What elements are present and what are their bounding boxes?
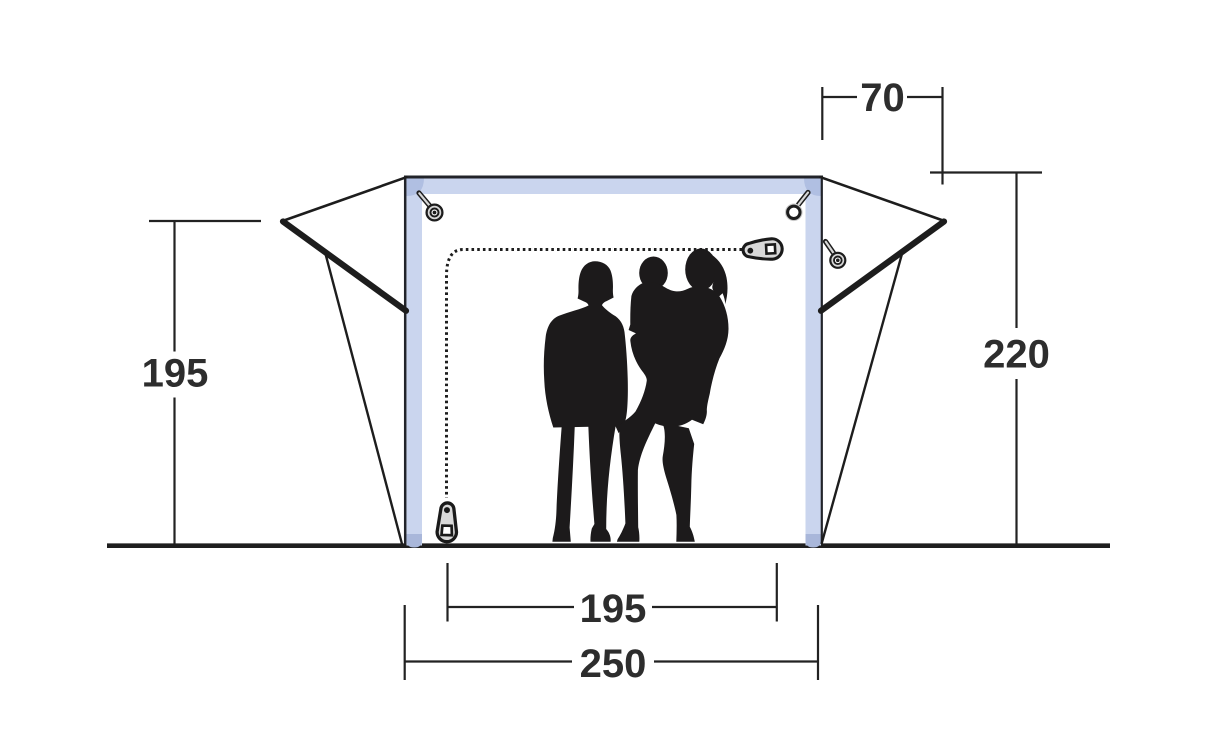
- svg-text:195: 195: [580, 587, 647, 631]
- svg-text:220: 220: [983, 333, 1050, 377]
- svg-text:70: 70: [860, 76, 905, 120]
- svg-text:250: 250: [580, 642, 647, 686]
- svg-text:195: 195: [142, 352, 209, 396]
